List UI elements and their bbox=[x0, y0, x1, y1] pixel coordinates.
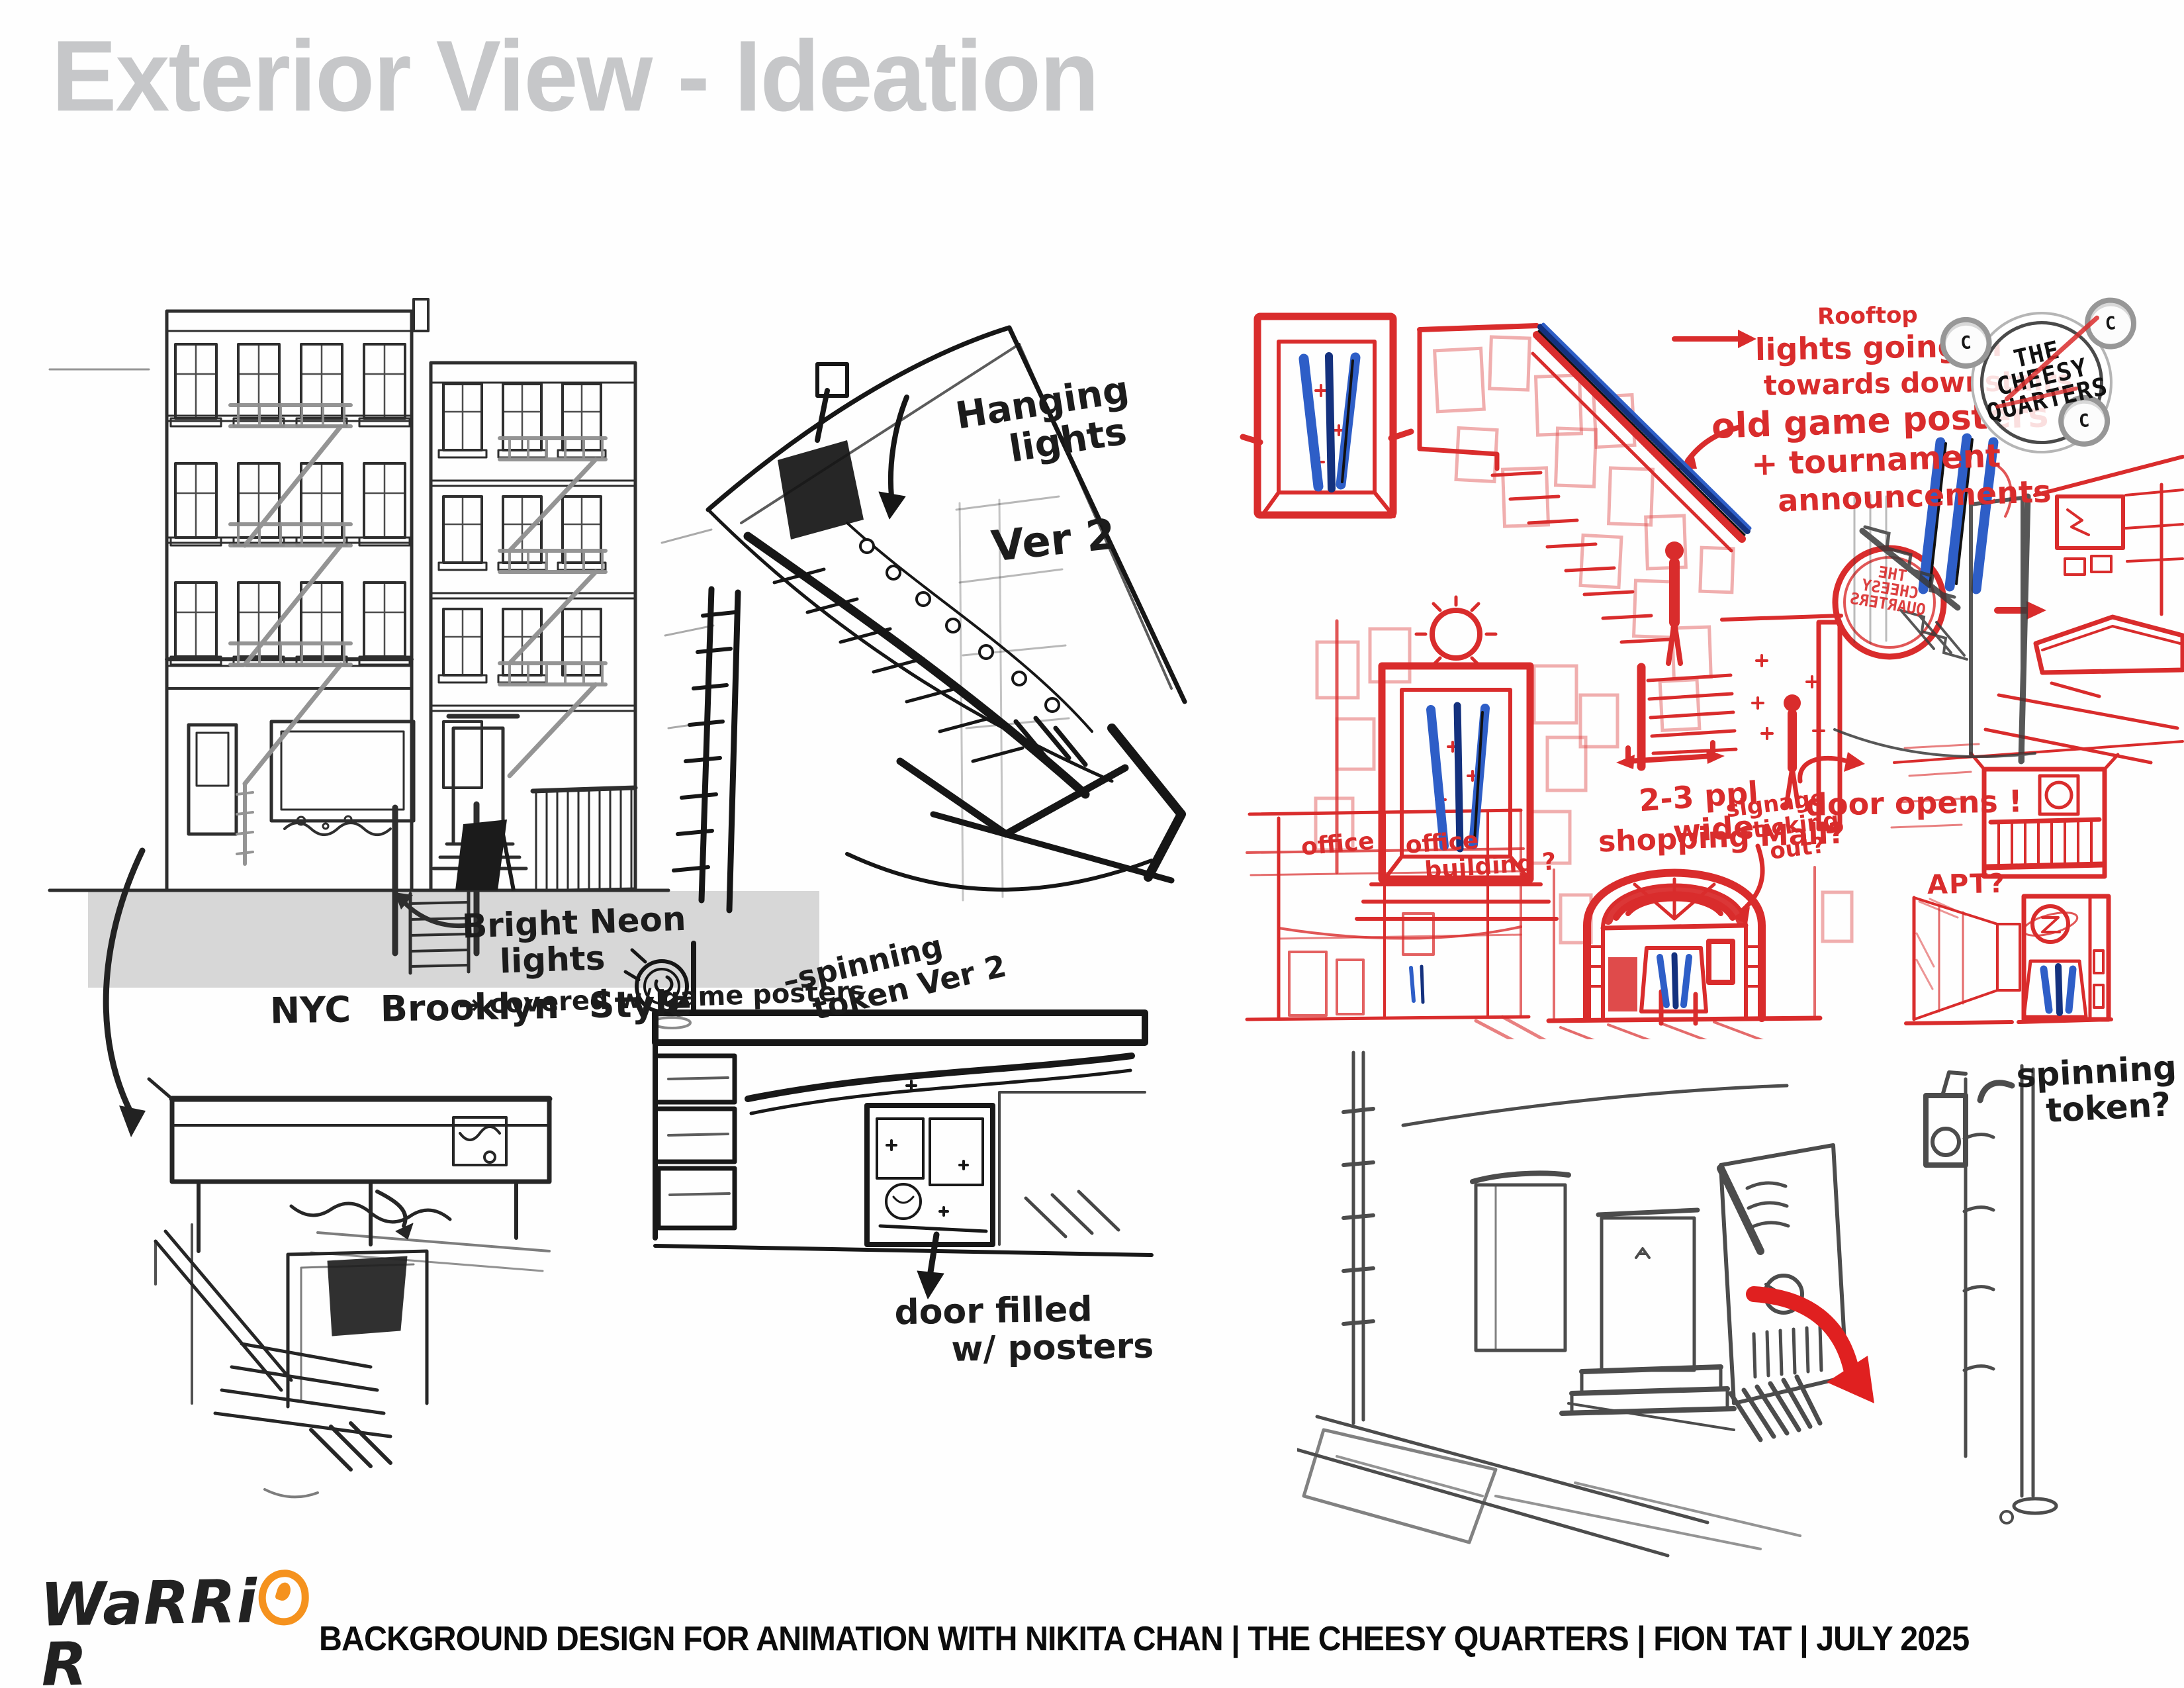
note-door-posters: door filled w/ posters bbox=[894, 1290, 1154, 1370]
page-title: Exterior View - Ideation bbox=[52, 19, 1098, 134]
note-nyc-style: NYC Brooklyn Style bbox=[270, 984, 692, 1030]
warrior-art-camp-logo: WaRRiR aRT camp bbox=[40, 1565, 327, 1688]
paint-blob-icon bbox=[258, 1570, 309, 1626]
note-spinning-token-q: spinning token? bbox=[2015, 1050, 2179, 1131]
note-apt: APT? bbox=[1927, 869, 2007, 900]
footer-credits: BACKGROUND DESIGN FOR ANIMATION WITH NIK… bbox=[319, 1619, 1969, 1659]
note-office-building: office building ? bbox=[1405, 822, 1557, 885]
sketch-marquee-entrance bbox=[93, 1033, 596, 1536]
cheesy-quarters-logo: C C C THE CHEESY QUARTERS bbox=[1948, 303, 2156, 462]
ideation-slide: Exterior View - Ideation bbox=[0, 0, 2184, 1688]
sandwich-board bbox=[455, 820, 507, 890]
